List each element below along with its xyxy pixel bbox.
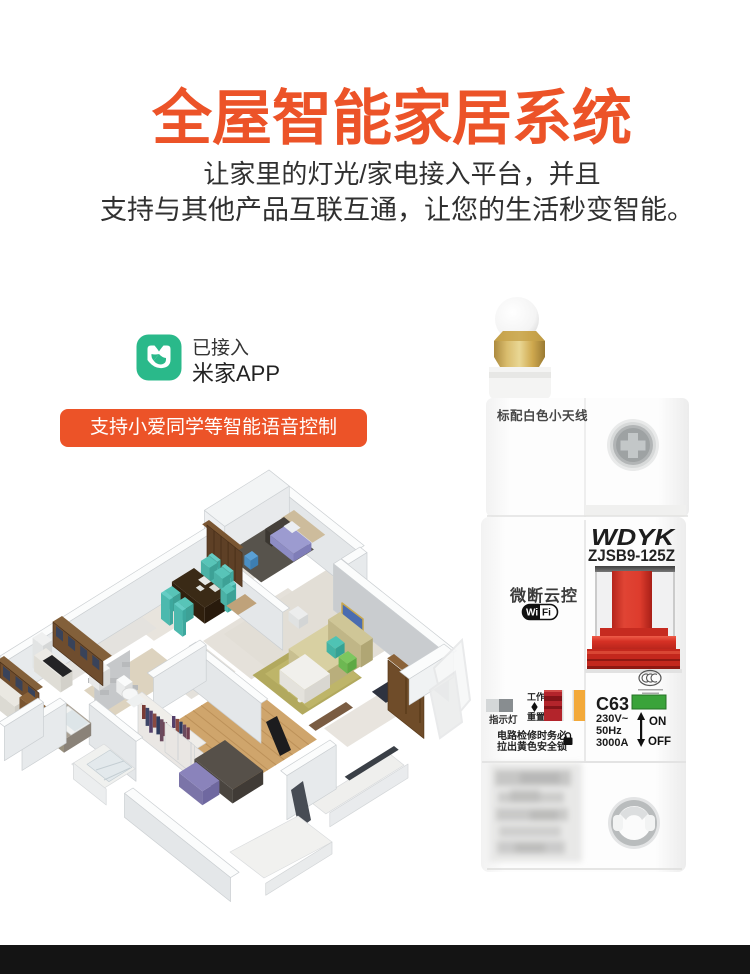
svg-text:ON: ON: [649, 716, 666, 728]
svg-text:Wi: Wi: [526, 608, 538, 619]
svg-text:工作: 工作: [527, 691, 545, 702]
svg-text:50Hz: 50Hz: [596, 725, 622, 737]
svg-text:重置: 重置: [527, 711, 545, 722]
svg-text:拉出黄色安全锁: 拉出黄色安全锁: [497, 740, 567, 753]
svg-text:230V~: 230V~: [596, 713, 629, 725]
svg-text:标配白色小天线: 标配白色小天线: [496, 408, 588, 423]
svg-text:OFF: OFF: [648, 736, 671, 748]
svg-text:指示灯: 指示灯: [489, 714, 518, 726]
svg-text:电路检修时务必: 电路检修时务必: [497, 729, 567, 742]
svg-text:微断云控: 微断云控: [509, 586, 578, 605]
svg-text:Fi: Fi: [542, 608, 551, 619]
svg-text:C63: C63: [596, 694, 629, 714]
svg-text:ZJSB9-125Z: ZJSB9-125Z: [588, 546, 675, 565]
svg-text:3000A: 3000A: [596, 737, 628, 749]
